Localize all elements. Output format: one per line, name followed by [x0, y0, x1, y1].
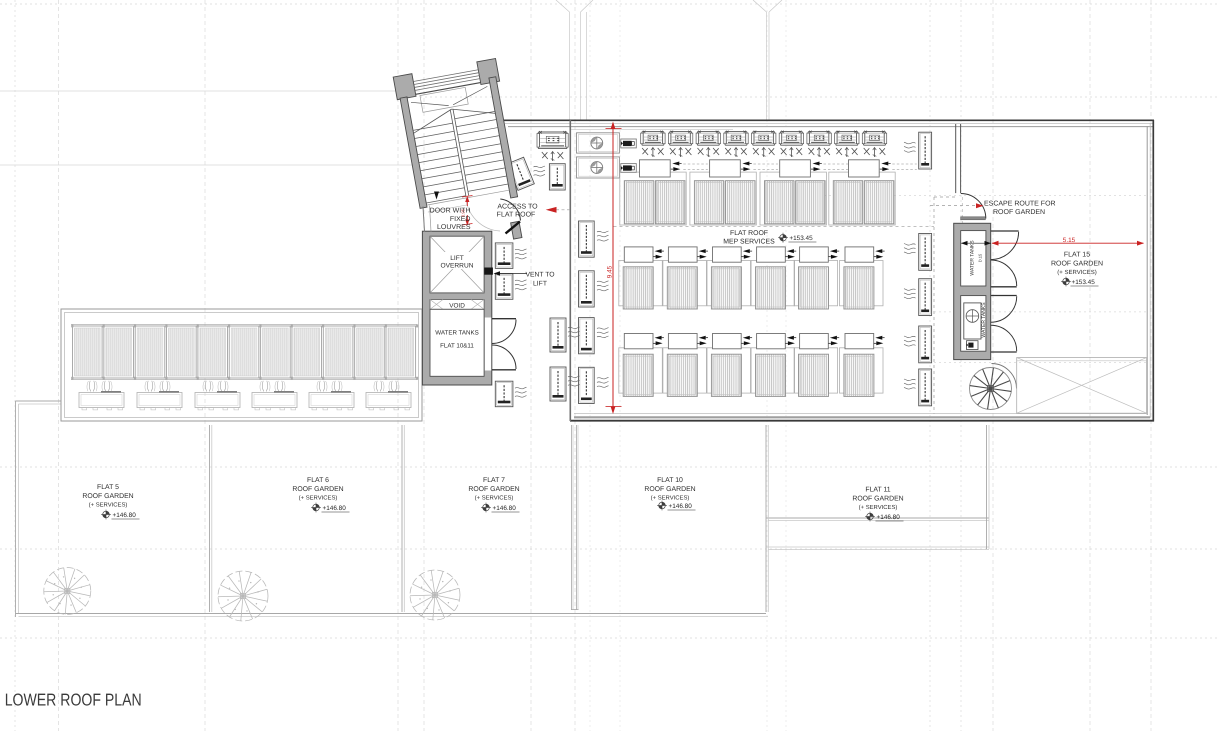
svg-text:5.15: 5.15 [1063, 237, 1076, 244]
svg-text:FLAT 15: FLAT 15 [1064, 252, 1090, 259]
svg-text:+146.80: +146.80 [493, 505, 517, 512]
svg-text:(+ SERVICES): (+ SERVICES) [651, 495, 690, 502]
svg-text:ROOF GARDEN: ROOF GARDEN [852, 496, 903, 503]
svg-text:+153.45: +153.45 [789, 235, 813, 242]
svg-text:+146.80: +146.80 [113, 512, 137, 519]
svg-text:ACCESS TO: ACCESS TO [497, 204, 538, 211]
svg-text:FLAT 6: FLAT 6 [307, 477, 329, 484]
svg-text:VENT TO: VENT TO [525, 272, 554, 279]
svg-text:FLAT ROOF: FLAT ROOF [497, 212, 536, 219]
svg-text:WATER TANKS: WATER TANKS [970, 240, 976, 276]
svg-text:LIFT: LIFT [533, 281, 547, 288]
svg-text:FLAT 10&11: FLAT 10&11 [440, 343, 474, 350]
svg-text:WATER TANKS: WATER TANKS [435, 330, 478, 337]
svg-text:VOID: VOID [449, 302, 465, 309]
svg-text:(+ SERVICES): (+ SERVICES) [299, 495, 338, 502]
svg-text:ROOF GARDEN: ROOF GARDEN [82, 493, 133, 500]
svg-text:ROOF GARDEN: ROOF GARDEN [644, 486, 695, 493]
svg-text:ROOF GARDEN: ROOF GARDEN [468, 486, 519, 493]
svg-text:9.45: 9.45 [607, 265, 614, 278]
svg-text:ROOF GARDEN: ROOF GARDEN [1051, 261, 1103, 268]
svg-text:FLAT 10: FLAT 10 [657, 477, 683, 484]
svg-text:(+ SERVICES): (+ SERVICES) [859, 504, 898, 511]
svg-text:FLAT 11: FLAT 11 [865, 487, 890, 494]
svg-text:+146.80: +146.80 [669, 503, 693, 510]
svg-text:ESCAPE ROUTE FOR: ESCAPE ROUTE FOR [984, 200, 1056, 207]
svg-text:+146.80: +146.80 [323, 505, 347, 512]
svg-text:(+ SERVICES): (+ SERVICES) [89, 502, 128, 509]
svg-text:WATER TANKS: WATER TANKS [981, 302, 987, 338]
svg-text:FLAT 7: FLAT 7 [483, 477, 505, 484]
svg-text:DOOR WITH: DOOR WITH [430, 208, 471, 215]
svg-text:ROOF GARDEN: ROOF GARDEN [993, 209, 1045, 216]
svg-text:+153.45: +153.45 [1072, 279, 1096, 286]
svg-text:FIXED: FIXED [450, 216, 471, 223]
svg-text:+146.80: +146.80 [877, 514, 901, 521]
svg-text:OVERRUN: OVERRUN [441, 263, 474, 270]
svg-text:FLAT 5: FLAT 5 [97, 484, 119, 491]
svg-text:(+ SERVICES): (+ SERVICES) [1057, 269, 1096, 276]
svg-text:LOWER ROOF PLAN: LOWER ROOF PLAN [5, 690, 142, 710]
svg-text:FLAT ROOF: FLAT ROOF [730, 230, 768, 237]
svg-text:(+ SERVICES): (+ SERVICES) [475, 495, 514, 502]
svg-text:LIFT: LIFT [450, 255, 464, 262]
svg-text:MEP SERVICES: MEP SERVICES [723, 239, 775, 246]
svg-text:ROOF GARDEN: ROOF GARDEN [292, 486, 343, 493]
svg-text:LOUVRES: LOUVRES [437, 224, 471, 231]
svg-text:D.15: D.15 [978, 253, 983, 262]
